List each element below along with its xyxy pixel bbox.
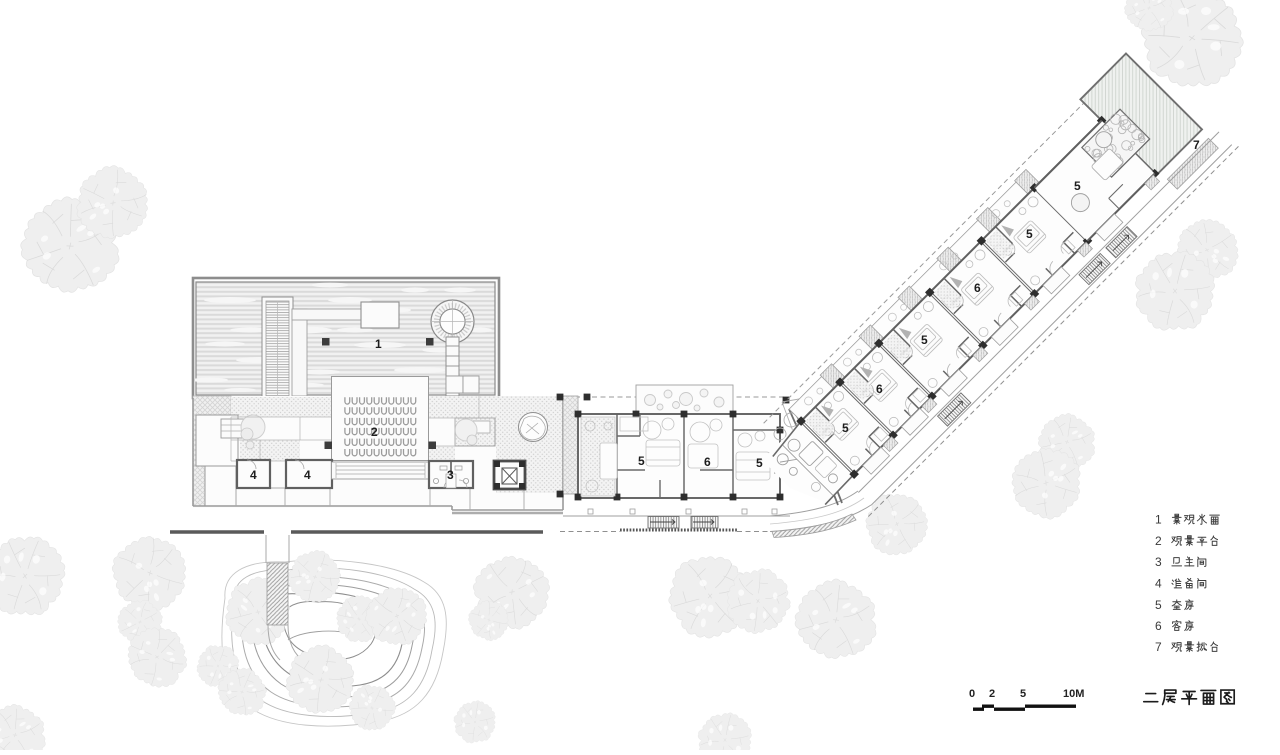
svg-text:7: 7 bbox=[1155, 640, 1162, 654]
svg-text:10M: 10M bbox=[1063, 688, 1084, 700]
svg-text:0: 0 bbox=[969, 688, 975, 700]
svg-text:5: 5 bbox=[756, 456, 763, 470]
svg-text:1: 1 bbox=[375, 337, 382, 351]
svg-text:5: 5 bbox=[1155, 598, 1162, 612]
svg-text:4: 4 bbox=[1155, 577, 1162, 591]
svg-text:2: 2 bbox=[989, 688, 995, 700]
svg-text:5: 5 bbox=[842, 421, 849, 435]
svg-text:6: 6 bbox=[974, 281, 981, 295]
svg-text:6: 6 bbox=[704, 455, 711, 469]
svg-text:3: 3 bbox=[447, 468, 454, 482]
svg-text:1: 1 bbox=[1155, 513, 1162, 527]
svg-text:4: 4 bbox=[304, 468, 311, 482]
svg-text:5: 5 bbox=[1026, 227, 1033, 241]
svg-text:4: 4 bbox=[250, 468, 257, 482]
svg-text:7: 7 bbox=[1193, 138, 1200, 152]
svg-text:6: 6 bbox=[876, 382, 883, 396]
svg-text:6: 6 bbox=[1155, 619, 1162, 633]
svg-text:5: 5 bbox=[921, 333, 928, 347]
svg-text:2: 2 bbox=[1155, 534, 1162, 548]
svg-text:5: 5 bbox=[1020, 688, 1026, 700]
svg-text:2: 2 bbox=[371, 425, 378, 439]
svg-text:3: 3 bbox=[1155, 555, 1162, 569]
svg-text:5: 5 bbox=[1074, 179, 1081, 193]
svg-text:5: 5 bbox=[638, 454, 645, 468]
